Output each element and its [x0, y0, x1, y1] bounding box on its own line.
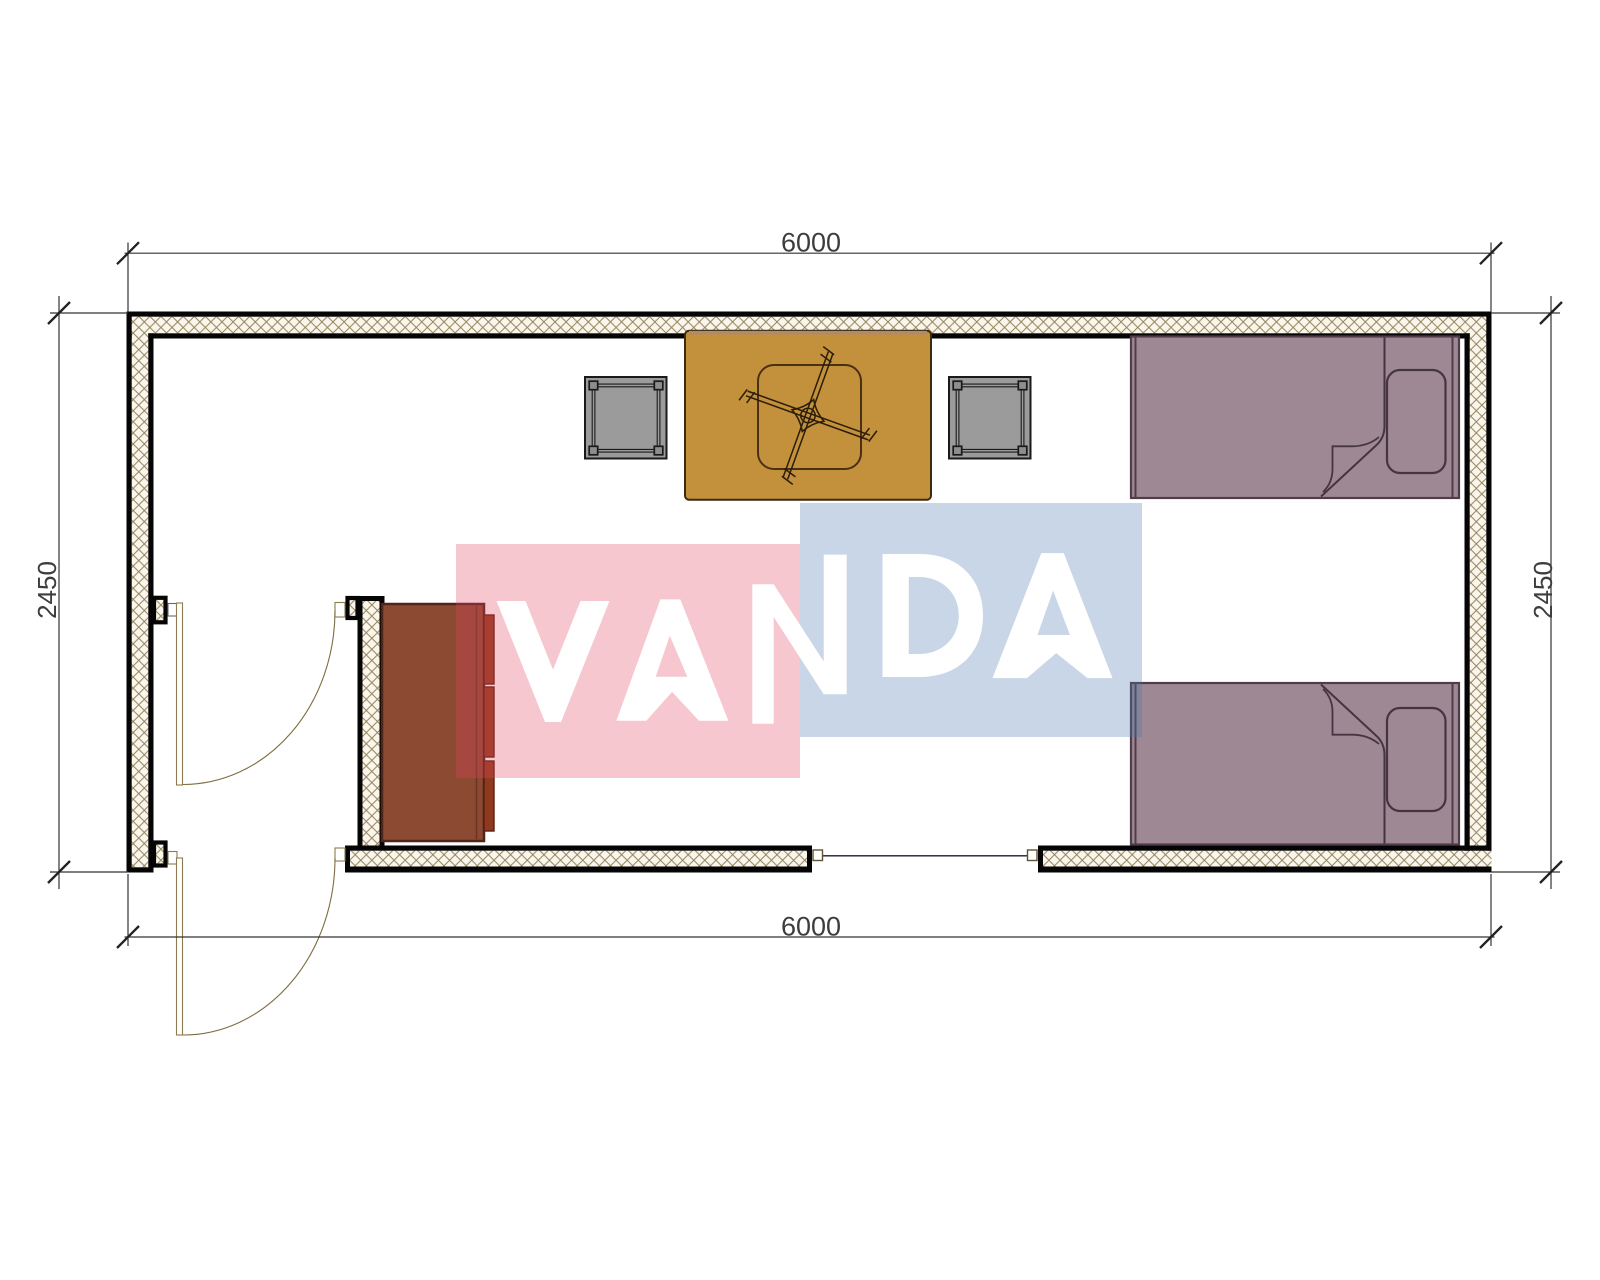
- svg-text:2450: 2450: [32, 561, 62, 619]
- svg-text:6000: 6000: [781, 228, 841, 258]
- svg-text:6000: 6000: [781, 912, 841, 942]
- svg-text:2450: 2450: [1528, 561, 1558, 619]
